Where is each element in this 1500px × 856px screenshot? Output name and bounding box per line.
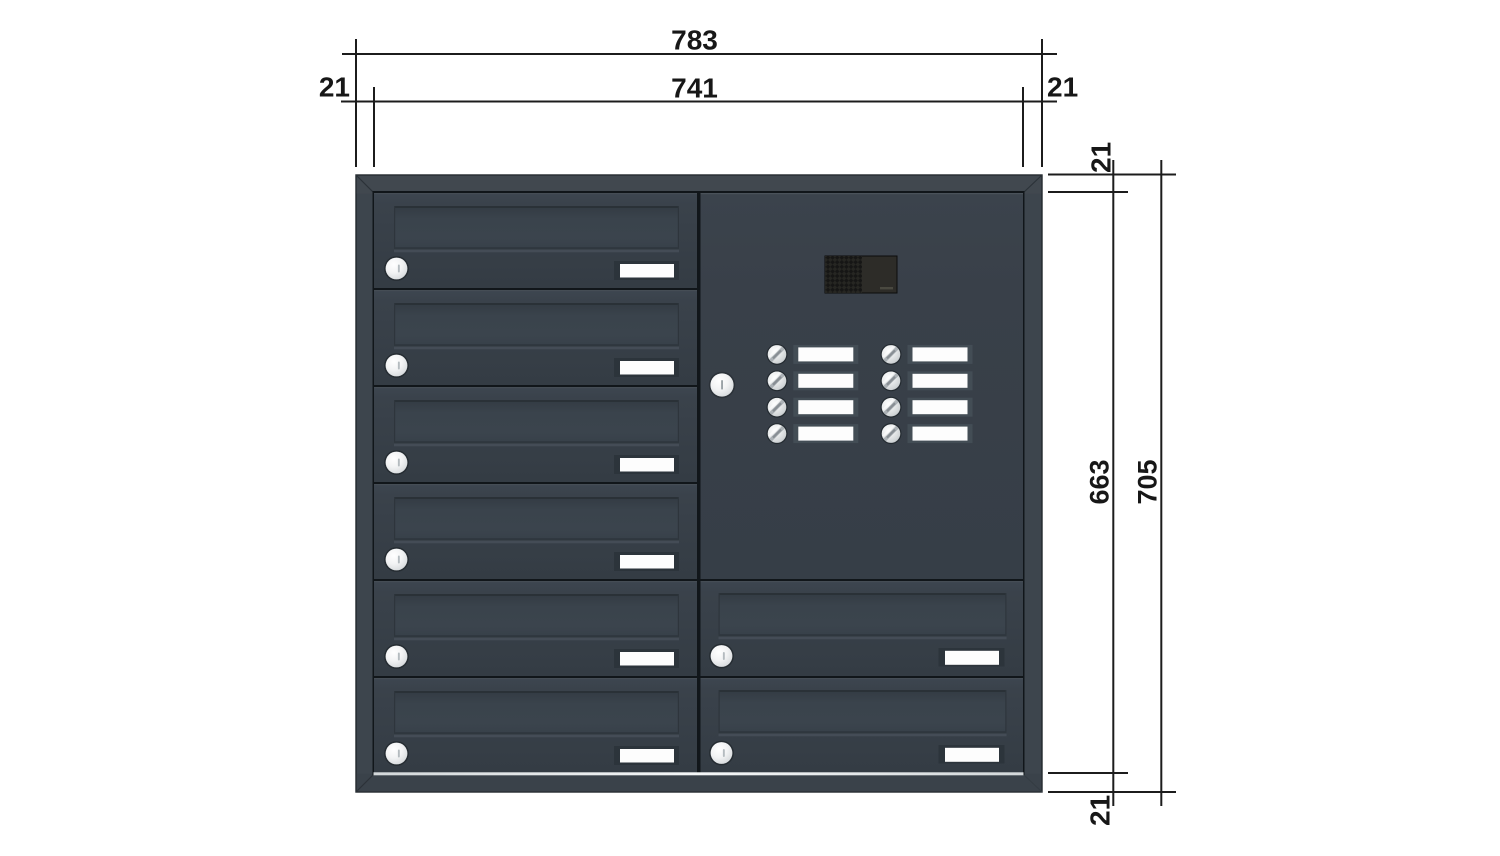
svg-text:21: 21 (319, 72, 350, 103)
svg-text:21: 21 (1086, 142, 1117, 173)
svg-text:705: 705 (1133, 459, 1163, 504)
svg-text:783: 783 (671, 25, 718, 56)
svg-text:21: 21 (1047, 72, 1078, 103)
svg-text:741: 741 (671, 73, 718, 104)
svg-text:663: 663 (1085, 459, 1115, 504)
svg-text:21: 21 (1085, 795, 1116, 826)
